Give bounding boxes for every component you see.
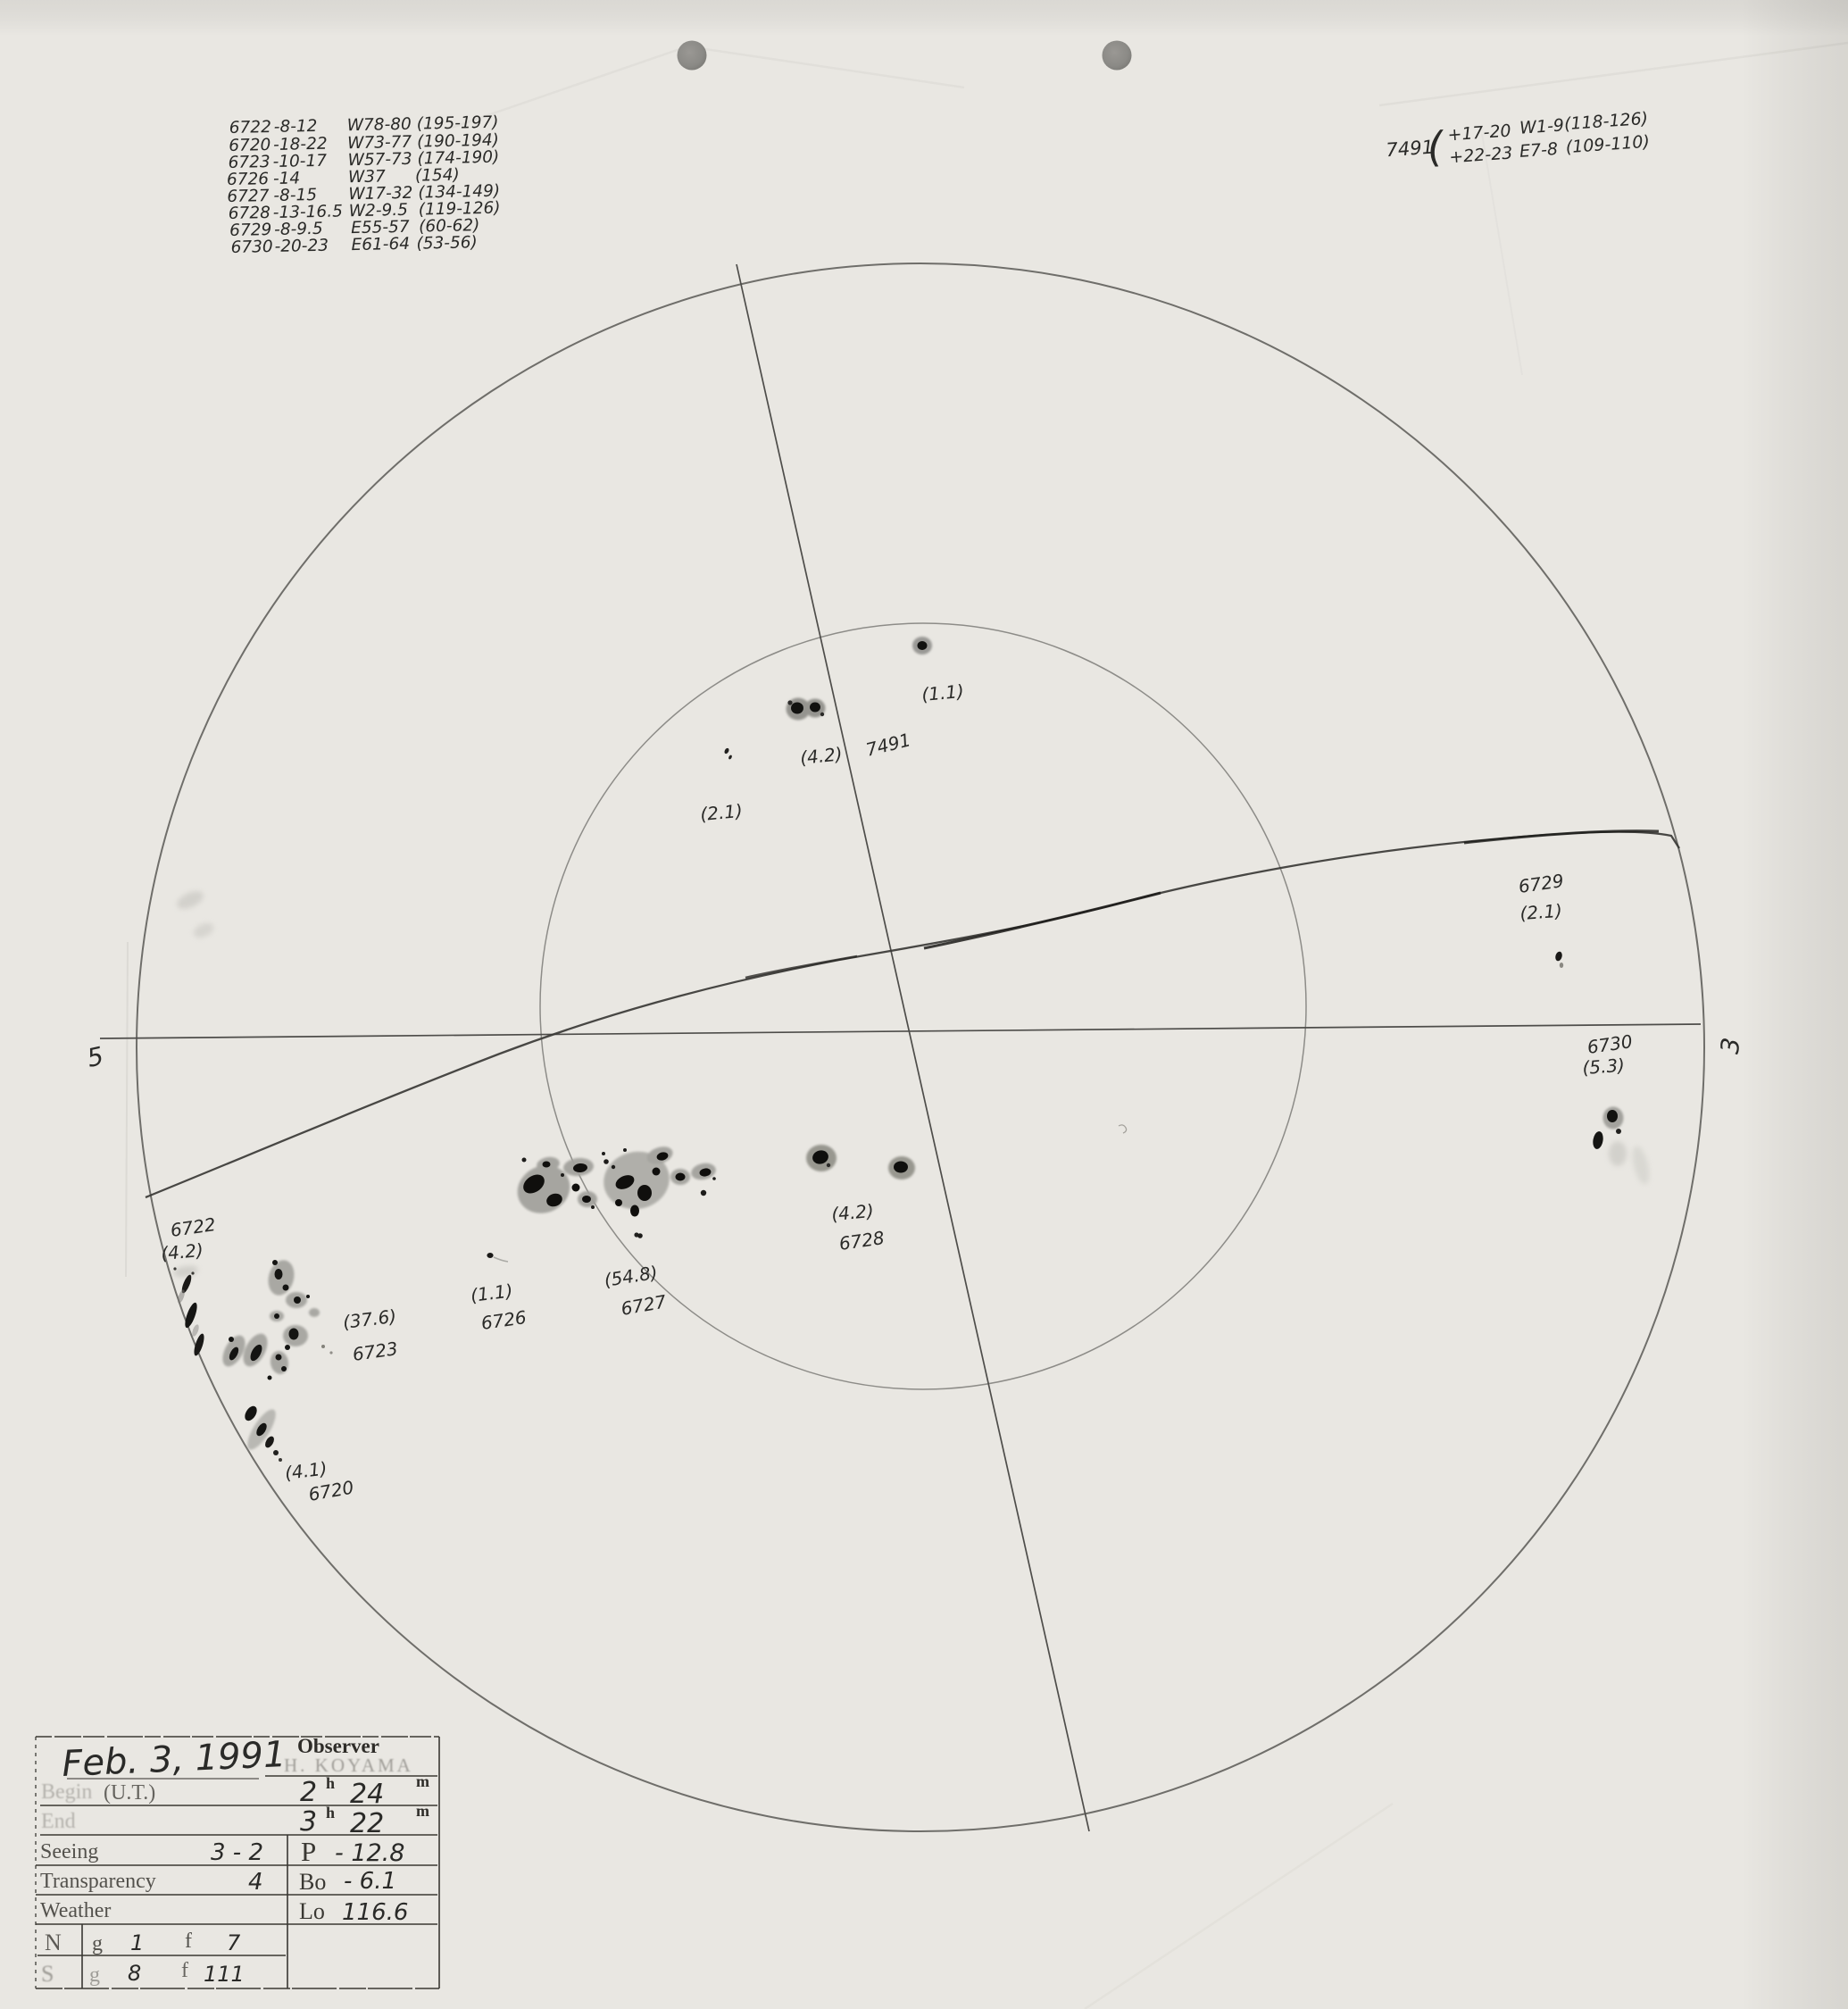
- p-label: P: [301, 1836, 316, 1867]
- north-f-value: 7: [227, 1930, 241, 1955]
- svg-text:m: m: [416, 1802, 429, 1820]
- svg-text:h: h: [326, 1804, 335, 1821]
- svg-text:W78-80: W78-80: [347, 115, 412, 136]
- north-label: N: [45, 1930, 62, 1955]
- label-count-6730: (5.3): [1582, 1055, 1626, 1079]
- observer-name: H. KOYAMA: [284, 1755, 413, 1776]
- svg-text:f: f: [185, 1930, 192, 1953]
- ut-label: (U.T.): [104, 1781, 155, 1805]
- svg-text:m: m: [416, 1772, 429, 1790]
- svg-text:f: f: [181, 1959, 188, 1982]
- seeing-label: Seeing: [40, 1840, 98, 1863]
- lo-label: Lo: [299, 1898, 325, 1924]
- end-hour: 3: [300, 1806, 317, 1838]
- scanned-solar-drawing-sheet: (1.1) (4.2) 7491 (2.1) 6729 (2.1) 6730 (…: [0, 0, 1848, 2009]
- svg-text:6722: 6722: [229, 118, 272, 138]
- punch-hole-left: [678, 41, 707, 71]
- svg-text:-8-12: -8-12: [274, 117, 318, 137]
- svg-text:W1-9: W1-9: [1519, 115, 1564, 138]
- svg-text:E7-8: E7-8: [1519, 139, 1558, 162]
- transparency-label: Transparency: [40, 1870, 156, 1893]
- transparency-value: 4: [248, 1869, 263, 1896]
- sunspot-drawing-canvas: (1.1) (4.2) 7491 (2.1) 6729 (2.1) 6730 (…: [0, 0, 1848, 2009]
- lo-value: 116.6: [342, 1899, 408, 1926]
- begin-label: Begin: [41, 1780, 92, 1804]
- svg-text:g: g: [92, 1932, 103, 1955]
- weather-label: Weather: [40, 1899, 111, 1922]
- bo-label: Bo: [299, 1869, 326, 1895]
- svg-text:E61-64: E61-64: [351, 235, 410, 254]
- group-position-list: 6722-8-12W78-80(195-197) 6720-18-22W73-7…: [226, 113, 502, 257]
- begin-hour: 2: [300, 1777, 317, 1808]
- svg-text:-20-23: -20-23: [274, 237, 329, 256]
- label-count-7491-small: (2.1): [699, 800, 743, 825]
- paper-background: [0, 0, 1848, 2009]
- svg-text:g: g: [89, 1963, 100, 1987]
- north-g-value: 1: [130, 1930, 144, 1955]
- south-label: S: [41, 1961, 54, 1987]
- label-count-7491-pair: (4.2): [799, 743, 844, 769]
- begin-minute: 24: [350, 1779, 384, 1810]
- south-f-value: 111: [204, 1962, 245, 1987]
- label-count-6728: (4.2): [830, 1200, 874, 1225]
- punch-hole-right: [1103, 41, 1132, 71]
- svg-text:h: h: [326, 1774, 335, 1792]
- label-count-6729: (2.1): [1519, 900, 1563, 924]
- south-g-value: 8: [128, 1961, 141, 1986]
- label-count-6722: (4.2): [160, 1239, 204, 1264]
- seeing-value: 3 - 2: [211, 1839, 263, 1866]
- svg-text:6730: 6730: [230, 238, 273, 257]
- svg-text:(53-56): (53-56): [416, 233, 478, 253]
- end-minute: 22: [350, 1808, 384, 1839]
- bo-value: - 6.1: [344, 1868, 396, 1895]
- label-count-7491-north: (1.1): [920, 680, 964, 705]
- p-value: - 12.8: [335, 1839, 404, 1867]
- end-label: End: [41, 1810, 76, 1833]
